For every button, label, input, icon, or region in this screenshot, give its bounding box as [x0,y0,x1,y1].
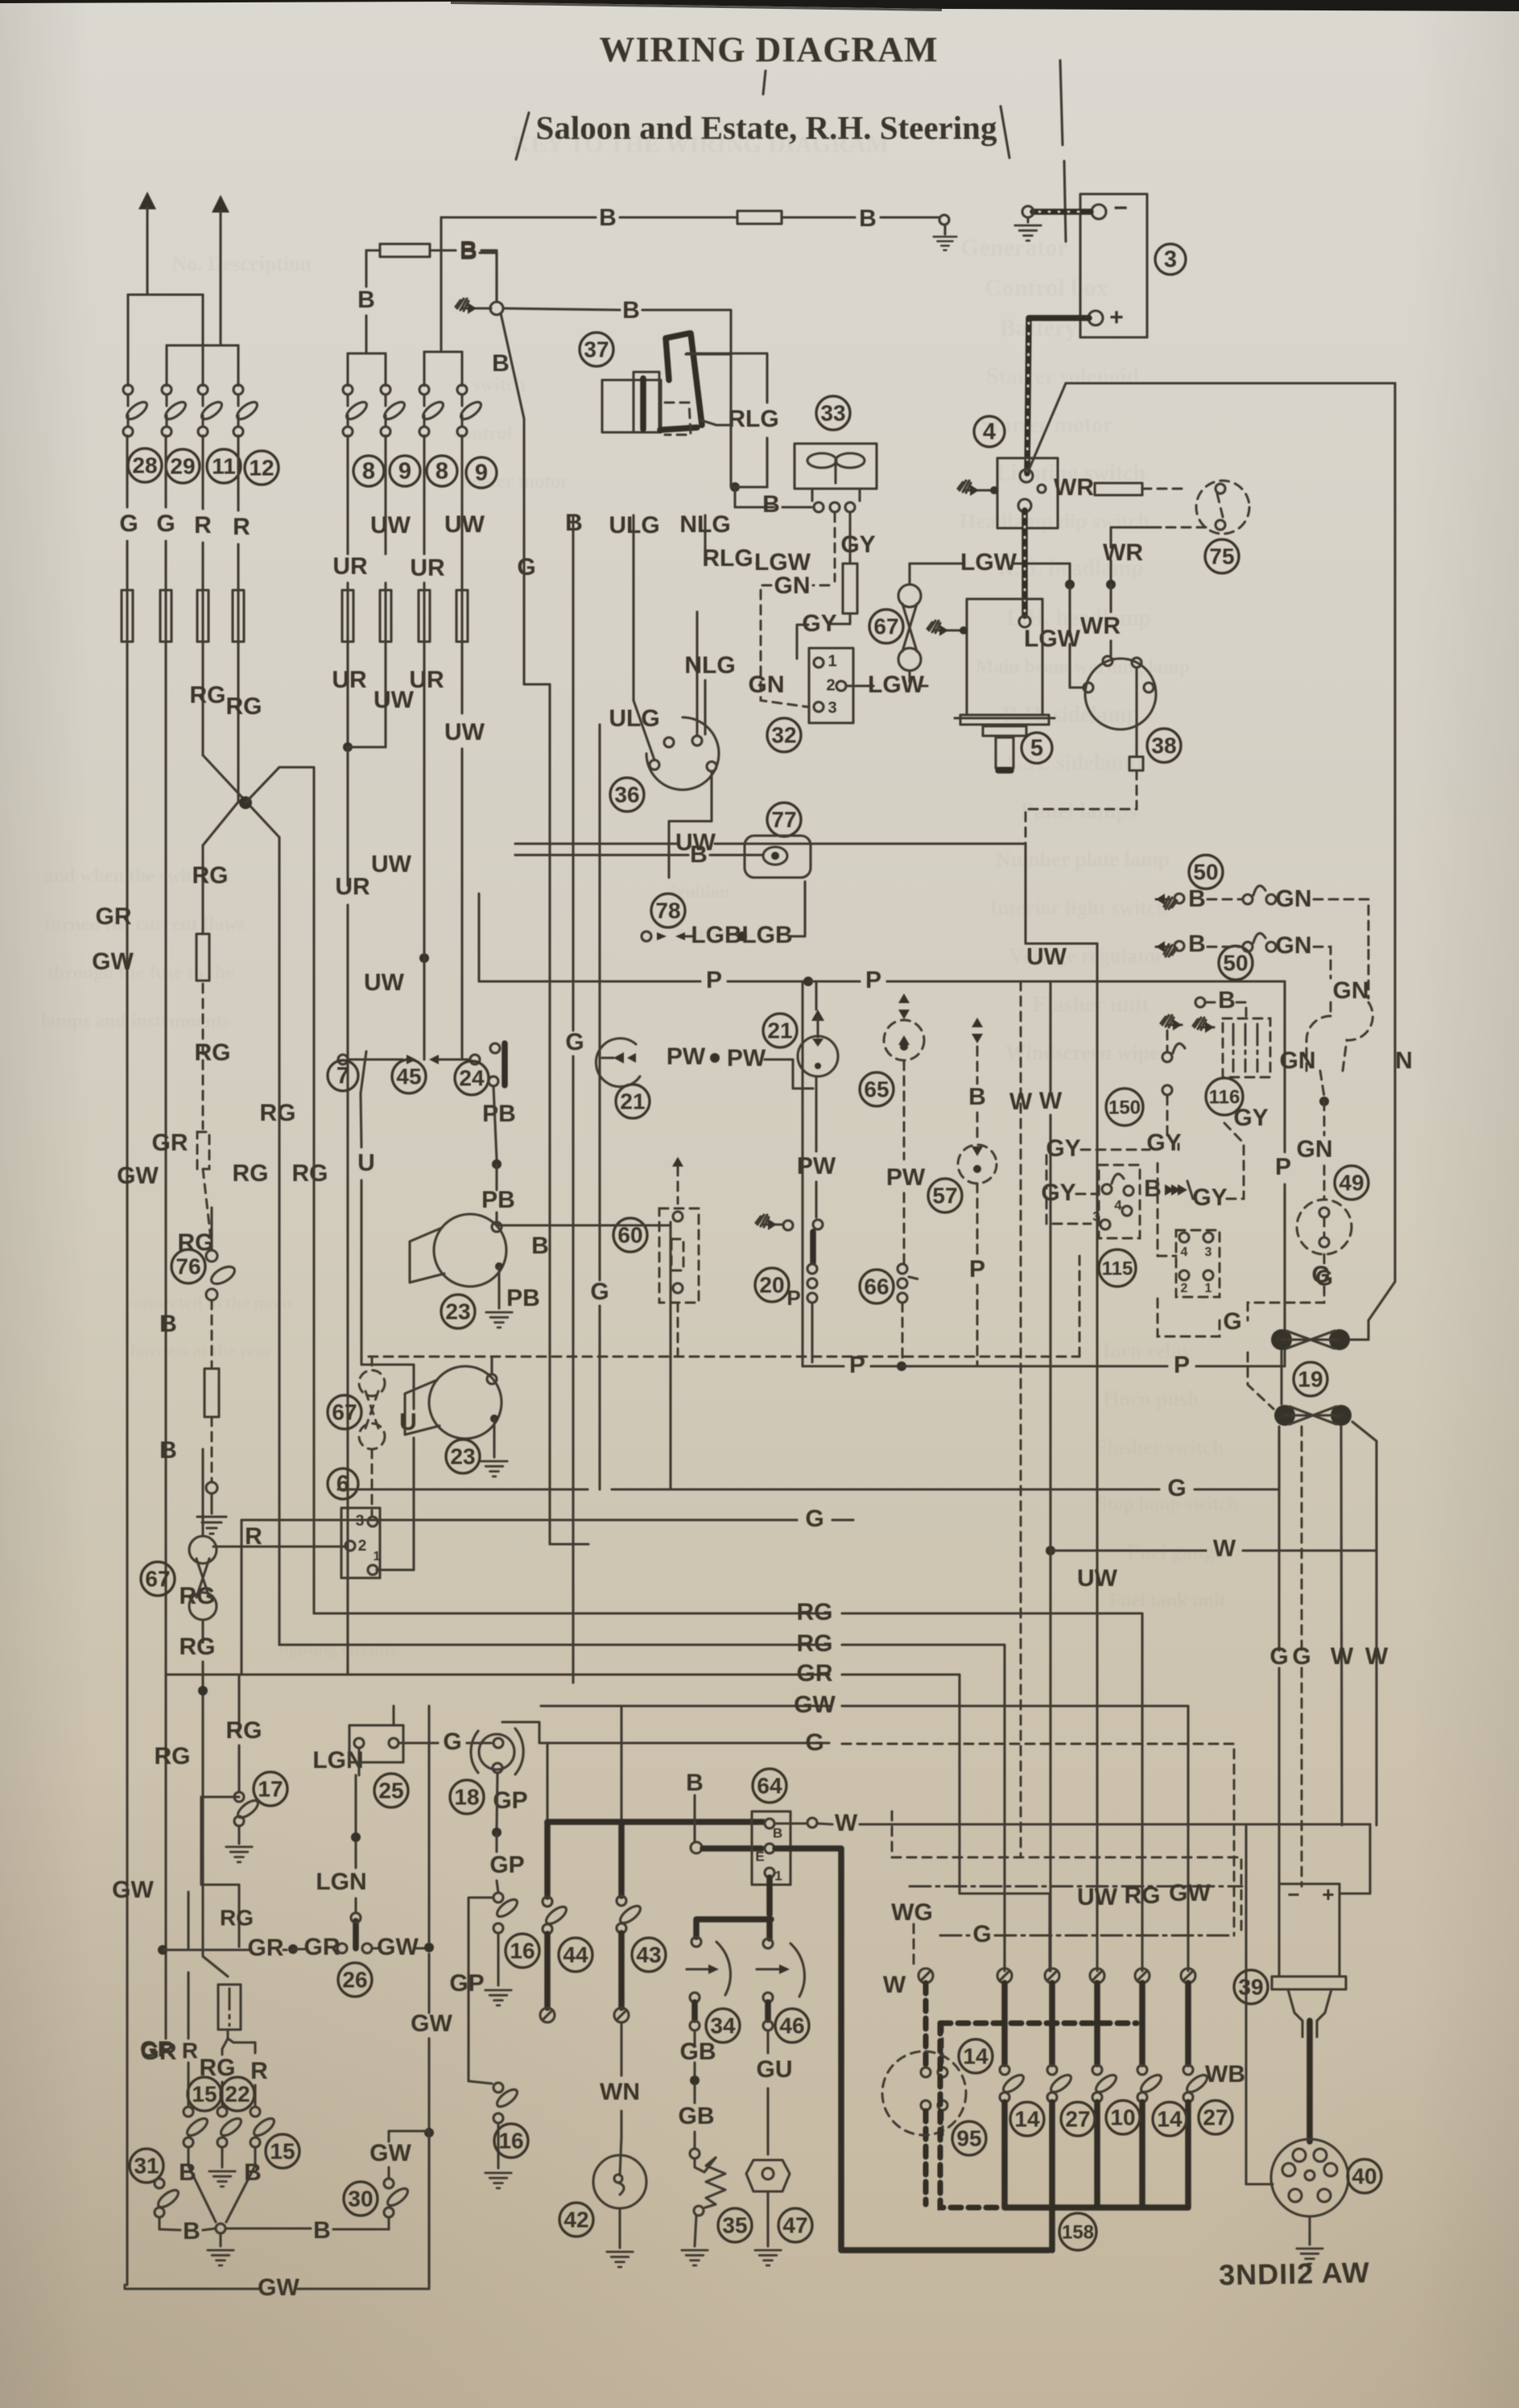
svg-text:P: P [849,1352,865,1378]
svg-text:B: B [159,1437,177,1464]
svg-text:G: G [443,1729,461,1755]
svg-text:45: 45 [396,1064,421,1088]
svg-text:95: 95 [956,2125,981,2150]
svg-text:8: 8 [435,459,448,485]
svg-text:GP: GP [449,1970,484,1997]
svg-text:12: 12 [249,455,274,480]
svg-text:G: G [517,554,535,580]
svg-text:PB: PB [481,1187,515,1213]
svg-text:67: 67 [873,613,898,638]
svg-text:GB: GB [680,2038,716,2065]
svg-text:GW: GW [92,948,134,975]
svg-text:lighting circuits: lighting circuits [279,1638,398,1658]
svg-text:WIRING DIAGRAM: WIRING DIAGRAM [600,30,939,69]
svg-text:G: G [805,1506,823,1532]
svg-text:25: 25 [378,1778,403,1803]
svg-text:B: B [460,238,477,265]
svg-text:B: B [492,350,510,377]
svg-text:connected to the main: connected to the main [126,1292,292,1312]
svg-text:−: − [1287,1882,1299,1906]
svg-text:−: − [1113,195,1128,221]
svg-text:GU: GU [757,2056,793,2083]
svg-text:GW: GW [369,2140,411,2166]
svg-text:LGW: LGW [754,549,811,576]
svg-text:3NDII2 AW: 3NDII2 AW [1219,2256,1370,2291]
svg-text:15: 15 [192,2081,217,2106]
svg-text:B: B [244,2159,262,2186]
svg-text:19: 19 [1298,1366,1323,1391]
svg-text:P: P [1275,1154,1291,1180]
svg-text:34: 34 [710,2013,736,2038]
svg-text:B: B [622,297,640,324]
svg-text:R: R [250,2058,268,2084]
svg-text:49: 49 [1339,1170,1364,1195]
svg-text:G: G [972,1921,991,1947]
svg-text:G: G [805,1729,823,1756]
svg-text:B: B [762,491,780,518]
svg-text:LGW: LGW [868,671,925,698]
svg-text:B: B [773,1825,782,1840]
svg-text:6: 6 [336,1472,349,1497]
svg-text:RLG: RLG [702,545,753,572]
svg-text:P: P [1174,1352,1190,1378]
svg-text:RG: RG [1125,1882,1161,1909]
svg-text:L.H. sidelamp: L.H. sidelamp [1007,750,1143,775]
svg-text:GR: GR [140,2036,174,2061]
svg-text:Windscreen wiper: Windscreen wiper [1005,1041,1168,1064]
svg-text:2: 2 [358,1538,367,1555]
svg-text:Starter solenoid: Starter solenoid [986,364,1139,389]
svg-text:R: R [233,514,250,540]
svg-text:29: 29 [170,453,195,478]
svg-text:GR: GR [304,1934,341,1960]
svg-text:lamps and instruments: lamps and instruments [41,1011,230,1032]
svg-text:W: W [1213,1535,1236,1562]
svg-text:PW: PW [886,1164,926,1191]
svg-text:2: 2 [826,676,835,694]
svg-text:1: 1 [774,1868,782,1883]
svg-text:24: 24 [459,1065,485,1090]
svg-text:GW: GW [112,1877,154,1903]
svg-text:1: 1 [374,1550,381,1563]
svg-text:LGN: LGN [316,1869,366,1895]
svg-text:158: 158 [1062,2221,1094,2243]
svg-text:G: G [1292,1643,1311,1670]
svg-text:UW: UW [1077,1884,1118,1910]
svg-text:17: 17 [258,1776,283,1801]
svg-text:RG: RG [233,1160,269,1187]
svg-text:W: W [835,1810,858,1836]
svg-text:RLG: RLG [728,406,778,432]
svg-text:2: 2 [1181,1282,1188,1295]
svg-text:46: 46 [779,2013,804,2038]
svg-text:Flasher switch: Flasher switch [1095,1435,1224,1459]
svg-text:B: B [531,1233,549,1259]
svg-text:67: 67 [145,1566,170,1591]
svg-text:23: 23 [450,1444,475,1468]
svg-text:47: 47 [782,2212,807,2237]
svg-text:GY: GY [840,531,875,558]
svg-text:U: U [357,1150,375,1176]
svg-text:A3: A3 [1335,1411,1348,1422]
svg-text:UW: UW [1077,1565,1118,1592]
svg-text:GW: GW [1169,1880,1211,1906]
svg-text:50: 50 [1193,859,1218,884]
svg-text:No. Description: No. Description [171,252,312,275]
svg-text:GN: GN [1276,932,1312,959]
svg-text:42: 42 [563,2207,588,2232]
svg-text:GR: GR [248,1935,284,1961]
svg-text:65: 65 [864,1076,889,1101]
svg-text:B: B [1144,1175,1162,1202]
svg-text:5: 5 [1030,736,1043,762]
svg-text:RG: RG [797,1599,833,1625]
svg-text:23: 23 [445,1299,470,1324]
svg-text:115: 115 [1102,1258,1133,1279]
svg-text:3: 3 [1092,1208,1100,1224]
svg-text:E: E [755,1848,764,1864]
svg-text:UR: UR [409,667,444,693]
svg-text:4: 4 [983,419,996,445]
svg-text:21: 21 [767,1018,792,1043]
svg-text:B: B [686,1770,704,1796]
svg-text:LGB: LGB [741,922,792,948]
svg-text:22: 22 [225,2081,250,2106]
svg-text:16: 16 [510,1938,535,1963]
svg-text:76: 76 [175,1254,200,1278]
svg-text:P: P [706,967,722,993]
svg-text:20: 20 [759,1272,784,1297]
svg-text:4: 4 [1114,1197,1122,1212]
svg-text:GY: GY [1146,1130,1181,1156]
svg-text:PW: PW [667,1043,706,1070]
svg-text:RG: RG [797,1630,833,1657]
svg-text:GR: GR [797,1660,833,1687]
svg-text:KEY TO THE WIRING DIAGRAM: KEY TO THE WIRING DIAGRAM [512,131,889,158]
svg-text:10: 10 [1110,2104,1135,2129]
svg-text:UW: UW [364,969,405,996]
svg-text:RG: RG [192,862,229,889]
svg-text:GN: GN [749,671,785,698]
svg-text:RG: RG [220,1905,254,1930]
svg-text:GW: GW [794,1691,836,1718]
svg-text:G: G [1269,1643,1288,1670]
svg-text:B: B [1188,886,1206,912]
svg-text:UR: UR [332,553,368,580]
svg-text:UW: UW [371,851,412,878]
svg-text:RG: RG [190,682,226,708]
svg-text:PB: PB [506,1285,540,1311]
svg-text:RG: RG [226,693,262,720]
svg-text:GY: GY [1233,1105,1268,1131]
svg-text:33: 33 [820,400,845,425]
svg-text:LGB: LGB [691,922,741,948]
svg-text:14: 14 [963,2043,989,2068]
svg-text:RG: RG [195,1039,231,1066]
svg-text:WR: WR [1103,539,1143,566]
svg-text:+: + [1322,1882,1334,1906]
svg-text:40: 40 [1352,2163,1377,2188]
svg-text:3: 3 [1164,247,1177,273]
svg-text:WB: WB [1205,2061,1245,2088]
svg-text:GY: GY [1046,1135,1080,1162]
svg-text:Headlamp dip switch: Headlamp dip switch [960,510,1150,533]
svg-text:14: 14 [1014,2106,1040,2131]
svg-text:50: 50 [1223,950,1248,975]
svg-text:RG: RG [226,1717,262,1744]
svg-text:7: 7 [336,1064,349,1089]
svg-text:UW: UW [444,511,485,538]
svg-text:GW: GW [411,2010,452,2037]
svg-text:W: W [883,1972,906,1998]
svg-text:67: 67 [332,1399,357,1424]
svg-text:G: G [590,1278,609,1305]
svg-text:N: N [1395,1047,1413,1074]
svg-text:B: B [1218,987,1236,1014]
svg-text:Fuel tank unit: Fuel tank unit [1108,1591,1225,1612]
svg-text:36: 36 [614,782,639,807]
svg-text:B: B [313,2217,331,2244]
svg-text:26: 26 [342,1967,367,1992]
svg-text:21: 21 [620,1088,645,1113]
svg-text:LGN: LGN [312,1747,363,1774]
svg-text:1: 1 [828,652,836,670]
svg-text:G: G [156,510,175,537]
svg-text:W: W [1009,1088,1033,1115]
svg-text:B: B [357,287,375,313]
svg-text:G: G [1167,1475,1186,1501]
svg-text:WG: WG [891,1899,933,1926]
svg-text:turned the current flows: turned the current flows [44,915,246,936]
svg-text:W: W [1365,1643,1389,1670]
svg-text:LGW: LGW [1024,626,1081,652]
svg-text:44: 44 [563,1942,588,1967]
svg-text:+: + [1109,304,1124,331]
svg-text:16: 16 [498,2128,523,2153]
svg-text:Control box: Control box [984,275,1108,301]
svg-text:Panel lamps: Panel lamps [1020,799,1137,824]
svg-text:3: 3 [828,699,836,717]
svg-text:P: P [969,1256,985,1282]
svg-text:harness at the rear: harness at the rear [130,1340,272,1361]
svg-text:B: B [968,1084,986,1110]
svg-text:GN: GN [1280,1047,1316,1074]
svg-text:38: 38 [1151,733,1176,758]
svg-text:ULG: ULG [609,705,659,732]
svg-text:35: 35 [722,2212,747,2237]
svg-text:3: 3 [1205,1245,1212,1259]
svg-text:UR: UR [410,555,445,581]
svg-text:1: 1 [1205,1282,1212,1295]
svg-text:GN: GN [1276,886,1312,912]
svg-text:G: G [1223,1308,1241,1335]
svg-text:43: 43 [636,1942,661,1967]
svg-text:75: 75 [1209,543,1234,568]
svg-text:GB: GB [679,2103,715,2129]
svg-text:GN: GN [774,572,811,599]
svg-text:RG: RG [292,1160,328,1187]
svg-text:A4: A4 [1278,1411,1291,1422]
svg-text:W: W [1331,1643,1354,1670]
svg-text:R: R [194,512,212,539]
svg-text:B: B [159,1311,177,1337]
svg-text:GW: GW [117,1163,159,1189]
svg-text:9: 9 [475,461,488,486]
svg-text:8: 8 [362,459,375,485]
svg-text:GN: GN [1333,977,1369,1004]
svg-text:WN: WN [600,2079,640,2105]
svg-text:R: R [245,1523,262,1550]
svg-text:UW: UW [444,719,485,746]
svg-text:UR: UR [332,667,367,693]
svg-text:P: P [865,967,881,993]
svg-text:G: G [119,510,138,537]
svg-text:PB: PB [482,1101,516,1127]
svg-text:B: B [179,2159,196,2186]
svg-text:WR: WR [1080,613,1121,639]
svg-text:18: 18 [454,1784,479,1809]
svg-text:66: 66 [864,1274,889,1299]
svg-text:Interior light switch: Interior light switch [989,896,1168,919]
svg-text:4: 4 [1181,1245,1188,1259]
svg-text:150: 150 [1108,1097,1141,1118]
svg-text:GW: GW [377,1934,419,1960]
svg-text:GN: GN [1297,1136,1333,1163]
svg-text:RG: RG [260,1100,296,1126]
svg-text:Number plate lamp: Number plate lamp [996,848,1170,871]
svg-text:NLG: NLG [684,652,735,679]
svg-text:B: B [599,204,617,231]
svg-text:WR: WR [1054,474,1094,501]
svg-text:Horn push: Horn push [1103,1387,1199,1411]
svg-text:A2: A2 [1275,1335,1288,1346]
svg-text:39: 39 [1238,1974,1263,1999]
svg-text:11: 11 [212,453,236,478]
svg-text:64: 64 [757,1773,782,1798]
svg-text:15: 15 [270,2138,295,2163]
svg-text:GY: GY [1192,1184,1227,1211]
svg-text:57: 57 [932,1183,957,1208]
svg-text:W: W [1039,1088,1063,1114]
svg-text:GP: GP [489,1852,524,1878]
svg-text:Generator: Generator [960,234,1067,261]
svg-text:LGW: LGW [960,549,1017,576]
svg-text:RG: RG [155,1743,191,1770]
svg-text:37: 37 [584,337,609,361]
svg-text:UW: UW [675,829,716,856]
svg-text:B: B [859,205,877,232]
svg-text:B: B [183,2218,200,2245]
svg-text:UW: UW [1026,944,1067,970]
svg-text:R: R [182,2038,198,2063]
svg-text:78: 78 [655,898,680,923]
svg-text:GR: GR [96,903,132,930]
svg-text:UR: UR [335,874,370,900]
svg-text:27: 27 [1203,2104,1228,2129]
svg-text:77: 77 [771,807,796,832]
svg-text:Main beam warning lamp: Main beam warning lamp [976,657,1190,678]
svg-text:30: 30 [348,2186,373,2211]
svg-text:P: P [786,1286,800,1310]
svg-text:32: 32 [771,722,796,747]
svg-text:RG: RG [180,1634,216,1660]
svg-text:28: 28 [132,452,157,477]
svg-text:27: 27 [1065,2106,1090,2131]
svg-text:B: B [1188,931,1206,957]
svg-text:UW: UW [370,512,411,539]
svg-text:31: 31 [134,2153,159,2178]
svg-text:Starter motor: Starter motor [980,412,1112,437]
svg-text:G: G [565,1029,584,1055]
svg-text:UW: UW [374,687,415,713]
svg-text:GR: GR [152,1130,188,1156]
svg-text:9: 9 [398,459,411,485]
svg-text:PW: PW [727,1045,766,1072]
svg-text:GW: GW [258,2274,299,2301]
svg-text:G: G [1315,1265,1333,1290]
svg-text:A1: A1 [1333,1335,1346,1346]
svg-text:14: 14 [1157,2106,1183,2131]
svg-text:GY: GY [802,610,836,637]
